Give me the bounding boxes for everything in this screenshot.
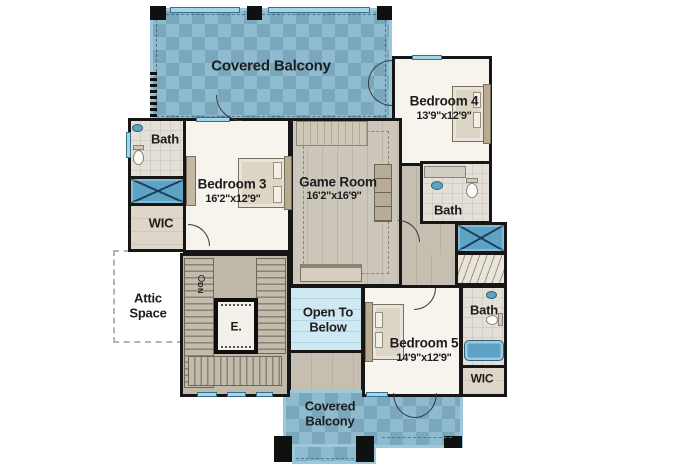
label-open-to-below: Open To Below: [303, 305, 353, 334]
attic-line1: Attic: [134, 290, 162, 305]
pillar-balcony-bottom-mid: [356, 436, 374, 462]
window-balcony-top-a: [170, 7, 240, 13]
attic-line2: Space: [129, 305, 166, 320]
window-bedroom-5: [366, 392, 388, 397]
balcony-bottom-step-dash: [296, 458, 354, 459]
label-attic-space: Attic Space: [129, 291, 166, 320]
railing-balcony-left: [150, 72, 157, 118]
tub-lower-bath: [464, 340, 504, 361]
sofa-game-room: [300, 264, 362, 282]
label-elevator: E.: [231, 320, 242, 333]
elevator-door-track-top: [221, 304, 251, 306]
linen-closet: [455, 252, 507, 286]
toilet-tank-lower-bath: [498, 313, 503, 326]
media-cabinet-game-room: [374, 164, 392, 222]
label-bedroom-3: Bedroom 3: [198, 176, 267, 191]
toilet-middle-bath: [466, 183, 478, 198]
window-stair-hall-b: [227, 392, 246, 397]
floor-plan: Covered Balcony Bedroom 4 13'9"x12'9" Ba…: [0, 0, 700, 470]
label-covered-balcony-top: Covered Balcony: [211, 59, 331, 76]
label-bedroom-4-dims: 13'9"x12'9": [416, 110, 471, 122]
stair-newel-post: [198, 275, 205, 282]
window-bedroom-4: [412, 55, 442, 60]
label-game-room: Game Room: [299, 174, 377, 189]
label-bath-middle: Bath: [434, 204, 462, 219]
pillow-bedroom-5-a: [375, 312, 383, 328]
headboard-bedroom-3: [284, 156, 292, 210]
label-bedroom-5: Bedroom 5: [390, 335, 459, 350]
pillow-bedroom-3-a: [273, 162, 282, 179]
balcony-bottom-railing-dash: [382, 437, 452, 438]
label-bath-lower: Bath: [470, 304, 498, 319]
window-stair-hall-c: [256, 392, 273, 397]
balcony-bottom-line2: Balcony: [305, 413, 354, 428]
window-balcony-top-b: [268, 7, 370, 13]
shower-middle: [455, 222, 507, 254]
stair-run-right: [256, 258, 286, 354]
open-below-line1: Open To: [303, 304, 353, 319]
label-bedroom-4: Bedroom 4: [410, 93, 479, 108]
label-wic-right: WIC: [471, 372, 494, 385]
elevator-door-track-bottom: [221, 346, 251, 348]
pillar-balcony-top-right: [377, 6, 392, 20]
pillar-balcony-top-mid: [247, 6, 262, 20]
balcony-bottom-line1: Covered: [305, 398, 356, 413]
label-bath-upper: Bath: [151, 133, 179, 148]
label-bedroom-3-dims: 16'2"x12'9": [205, 193, 260, 205]
hall-floor-bath-access: [420, 222, 458, 254]
label-stairs-dn: DN: [196, 282, 204, 294]
shower-upper-left: [128, 176, 188, 206]
stair-run-bottom: [188, 356, 282, 386]
pillar-balcony-top-left: [150, 6, 166, 20]
sink-lower-bath: [486, 291, 497, 299]
pillow-bedroom-5-b: [375, 332, 383, 348]
label-wic-left: WIC: [149, 217, 174, 232]
dresser-bedroom-3: [186, 156, 196, 206]
feature-wall-game-room: [296, 121, 368, 146]
label-game-room-dims: 16'2"x16'9": [306, 190, 361, 202]
pillow-bedroom-3-b: [273, 186, 282, 203]
label-bedroom-5-dims: 14'9"x12'9": [396, 352, 451, 364]
window-bath-upper: [126, 132, 131, 158]
headboard-bedroom-4: [483, 84, 491, 144]
pillow-bedroom-4-b: [473, 112, 481, 128]
window-stair-hall-a: [197, 392, 217, 397]
sink-upper-bath: [132, 124, 143, 132]
toilet-upper-bath: [133, 150, 144, 165]
window-bedroom-3: [196, 117, 230, 122]
vanity-middle-bath: [424, 166, 466, 178]
open-below-line2: Below: [309, 319, 346, 334]
label-covered-balcony-bottom: Covered Balcony: [305, 399, 356, 428]
pillar-balcony-bottom-left: [274, 436, 292, 462]
sink-middle-bath: [431, 181, 443, 190]
